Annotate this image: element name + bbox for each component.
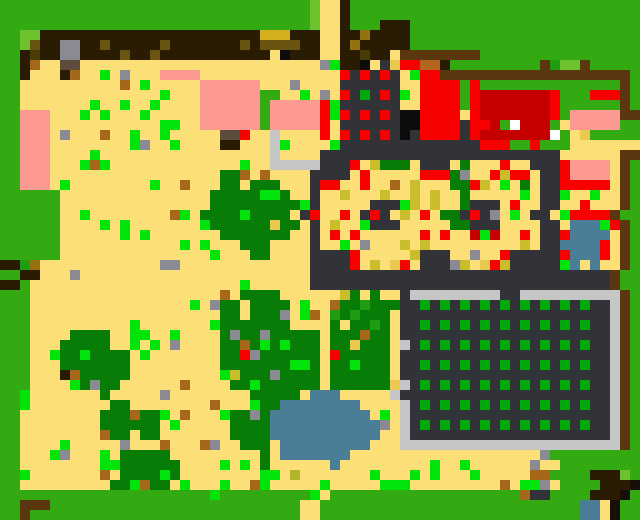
game-world-map: [0, 0, 640, 520]
world-map-canvas[interactable]: [0, 0, 640, 520]
